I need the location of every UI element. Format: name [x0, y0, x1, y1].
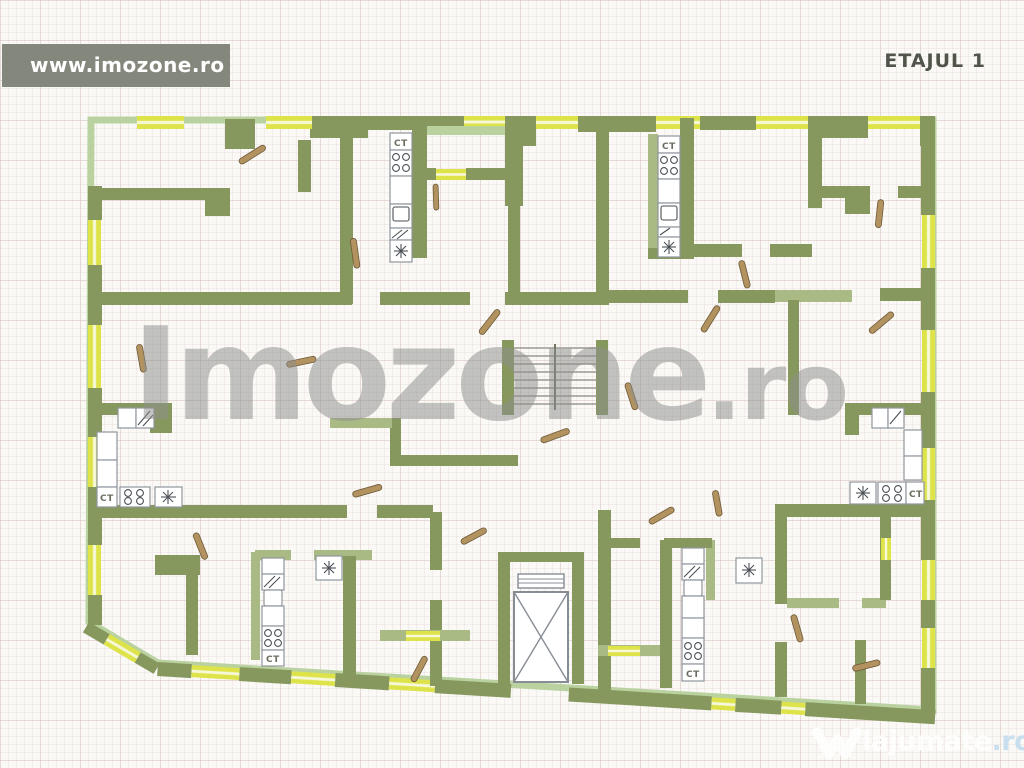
stove	[262, 626, 284, 650]
wall-segment	[921, 392, 935, 448]
drainer	[390, 228, 412, 240]
window	[868, 116, 922, 129]
counter	[658, 179, 680, 203]
wall-segment	[845, 403, 859, 435]
wall-segment	[330, 418, 392, 428]
wall-segment	[377, 505, 433, 518]
counter	[682, 596, 704, 618]
boiler-label: CT	[266, 655, 280, 665]
wall-segment	[498, 552, 584, 562]
sink	[682, 548, 704, 564]
site-url-banner: www.imozone.ro	[2, 44, 230, 87]
wall-segment	[88, 595, 102, 625]
boiler-label: CT	[909, 490, 923, 500]
wall-segment	[155, 555, 200, 575]
door-leaf	[540, 428, 570, 444]
wall-segment	[430, 600, 442, 686]
perimeter-right	[921, 140, 935, 712]
counter	[97, 432, 117, 460]
door-leaf	[700, 305, 721, 334]
counter	[904, 456, 922, 480]
drainer	[682, 564, 704, 580]
wall-segment	[664, 538, 712, 548]
wall-segment	[921, 140, 935, 215]
window	[922, 628, 935, 668]
wall-segment	[157, 662, 192, 678]
wall-segment	[788, 300, 799, 415]
elevator	[514, 574, 568, 682]
wall-segment	[775, 290, 852, 302]
door-leaf	[286, 356, 317, 368]
drainer	[262, 574, 284, 590]
wall-segment	[430, 512, 442, 570]
wall-segment	[921, 500, 935, 560]
elevator-core	[498, 510, 672, 690]
wall-segment	[498, 560, 510, 684]
washer-icon	[394, 244, 408, 258]
window	[266, 116, 312, 129]
door-leaf	[624, 382, 638, 410]
window	[922, 560, 935, 600]
door-leaf	[875, 199, 884, 227]
perimeter-bottom-left-diagonal	[83, 622, 160, 674]
wall-segment	[648, 134, 658, 254]
window	[881, 538, 891, 560]
window	[711, 697, 736, 710]
wall-segment	[775, 642, 787, 697]
door-leaf	[352, 484, 382, 498]
drainer	[888, 408, 904, 428]
kitchen-1: CT	[390, 133, 412, 262]
wall-segment	[735, 698, 782, 715]
kitchen-2: CT	[658, 136, 680, 257]
window	[922, 330, 935, 392]
window	[608, 646, 640, 656]
wall-segment	[502, 340, 514, 415]
wall-segment	[770, 244, 812, 257]
site-url-text: www.imozone.ro	[30, 53, 225, 77]
window	[436, 169, 466, 180]
wall-segment	[921, 668, 935, 712]
kitchen-4: CT	[850, 408, 924, 504]
wall-segment	[505, 118, 523, 206]
floor-plan-drawing: CT CT	[0, 0, 1024, 768]
interior-walls-bottom-right	[610, 512, 891, 704]
washer-icon	[856, 486, 870, 500]
wall-segment	[251, 552, 260, 660]
wall-segment	[380, 292, 470, 305]
counter	[682, 618, 704, 638]
floor-label: ETAJUL 1	[884, 50, 986, 72]
wall-segment	[412, 118, 427, 258]
wall-segment	[505, 292, 609, 305]
door-leaf	[712, 490, 722, 517]
sink-basin	[264, 590, 282, 606]
door-leaf	[460, 527, 488, 545]
counter	[97, 460, 117, 487]
door-leaf	[433, 184, 439, 210]
stove	[120, 487, 150, 507]
wall-segment	[680, 118, 694, 258]
door-leaf	[648, 506, 675, 525]
door-leaf	[868, 311, 895, 335]
stove	[390, 150, 412, 176]
wall-segment	[775, 504, 923, 517]
window	[88, 325, 101, 388]
wall-segment	[880, 288, 923, 301]
interior-walls-center-top	[412, 118, 609, 305]
window	[536, 116, 578, 129]
wall-segment	[572, 560, 584, 684]
wall-segment	[609, 290, 688, 303]
interior-walls-top-left	[90, 118, 353, 305]
boiler-label: CT	[662, 142, 676, 152]
stairwell	[502, 340, 608, 415]
wall-segment	[660, 540, 672, 688]
loggia-parapet	[413, 126, 520, 135]
wall-segment	[700, 116, 756, 130]
wall-segment	[610, 538, 640, 548]
window	[406, 631, 440, 641]
window	[88, 220, 101, 265]
door-leaf	[790, 614, 803, 643]
door-leaf	[136, 344, 147, 373]
wall-segment	[898, 186, 923, 198]
counter	[390, 176, 412, 204]
wall-segment	[466, 168, 505, 180]
stove	[658, 153, 680, 179]
door-leaf	[738, 260, 751, 289]
sink-basin	[684, 580, 702, 596]
wall-segment	[598, 510, 611, 645]
sink-basin	[393, 207, 409, 221]
wall-segment	[596, 118, 609, 305]
window	[922, 215, 935, 268]
wall-segment	[694, 244, 742, 257]
wall-segment	[718, 290, 775, 303]
wall-segment	[340, 118, 353, 304]
wall-segment	[921, 600, 935, 628]
wall-segment	[225, 119, 255, 149]
floor-plan-page: CT CT	[0, 0, 1024, 768]
wall-segment	[205, 188, 230, 216]
window	[756, 116, 808, 129]
boiler-label: CT	[394, 139, 408, 149]
sink-basin	[661, 206, 677, 220]
wall-segment	[390, 455, 518, 466]
wall-segment	[90, 292, 352, 305]
washer-icon	[662, 240, 676, 254]
wall-segment	[343, 556, 356, 684]
window	[781, 702, 806, 715]
sink	[262, 558, 284, 574]
stove	[682, 638, 704, 664]
interior-walls-top-right	[648, 118, 923, 259]
wall-segment	[706, 540, 715, 600]
washer-icon	[742, 563, 756, 577]
wall-segment	[855, 640, 866, 704]
stove	[878, 482, 906, 504]
stairs	[514, 344, 596, 410]
window	[137, 116, 184, 129]
kitchen-6: CT	[682, 548, 762, 681]
sink	[872, 408, 888, 428]
wall-segment	[578, 116, 656, 132]
window	[88, 545, 101, 595]
boiler-label: CT	[100, 494, 114, 504]
wall-segment	[412, 168, 436, 180]
door-leaf	[478, 308, 501, 335]
wall-segment	[508, 206, 520, 305]
kitchen-5: CT	[262, 556, 342, 666]
counter	[262, 606, 284, 626]
wall-segment	[787, 598, 839, 608]
counter	[904, 430, 922, 456]
wall-segment	[310, 116, 368, 138]
sink	[118, 408, 136, 428]
wall-segment	[298, 140, 311, 192]
wall-segment	[845, 186, 870, 214]
wall-segment	[775, 512, 787, 604]
wall-segment	[596, 340, 608, 415]
mid-corridor-wall	[380, 288, 923, 415]
wall-segment	[921, 268, 935, 330]
boiler-label: CT	[686, 670, 700, 680]
washer-icon	[322, 561, 336, 575]
elevator-door	[518, 574, 564, 588]
